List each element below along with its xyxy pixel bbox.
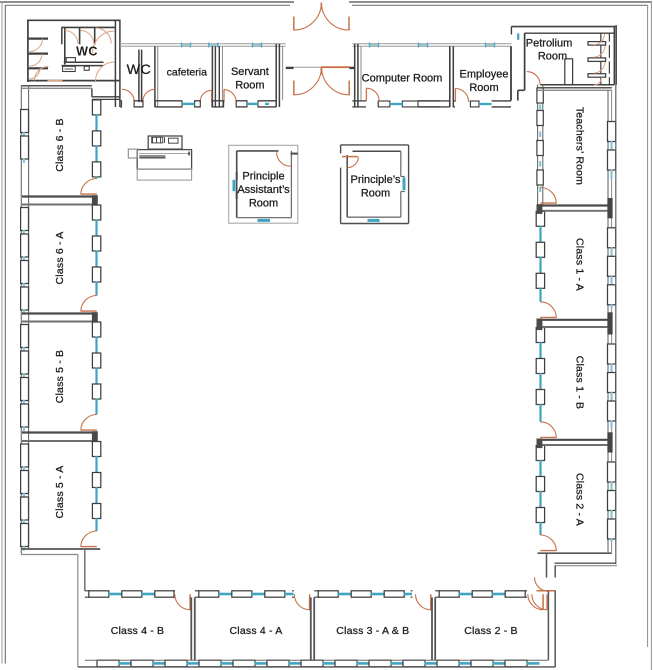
svg-text:Class 1 - A: Class 1 - A: [574, 238, 586, 291]
svg-text:Room: Room: [361, 188, 390, 200]
svg-text:WC: WC: [127, 62, 152, 78]
svg-text:Room: Room: [249, 198, 278, 210]
svg-text:Class 2 - A: Class 2 - A: [574, 473, 586, 526]
svg-text:Class 3 - A & B: Class 3 - A & B: [336, 625, 409, 637]
svg-text:Computer Room: Computer Room: [362, 73, 443, 85]
svg-text:Room: Room: [469, 82, 498, 94]
svg-text:Servant: Servant: [231, 66, 269, 78]
svg-text:Employee: Employee: [460, 69, 509, 81]
svg-text:Room: Room: [235, 80, 264, 92]
svg-text:Class 5 - B: Class 5 - B: [54, 350, 66, 404]
svg-text:Class 2 - B: Class 2 - B: [464, 625, 518, 637]
svg-text:Principle’s: Principle’s: [351, 174, 401, 186]
svg-text:Petrolium: Petrolium: [526, 38, 572, 50]
svg-text:Class 5 - A: Class 5 - A: [54, 466, 66, 519]
svg-text:Room: Room: [538, 51, 567, 63]
svg-text:cafeteria: cafeteria: [167, 67, 207, 79]
svg-text:Class 4 - A: Class 4 - A: [230, 625, 283, 637]
svg-text:WC: WC: [76, 45, 98, 59]
svg-text:Class 6 - A: Class 6 - A: [54, 232, 66, 285]
svg-text:Principle: Principle: [242, 171, 284, 183]
svg-text:Class 1 - B: Class 1 - B: [574, 356, 586, 410]
svg-text:Class 4 - B: Class 4 - B: [111, 625, 165, 637]
svg-text:Teachers’ Room: Teachers’ Room: [574, 107, 586, 185]
svg-text:Assistant’s: Assistant’s: [237, 184, 290, 196]
svg-text:Class 6 - B: Class 6 - B: [54, 118, 66, 172]
